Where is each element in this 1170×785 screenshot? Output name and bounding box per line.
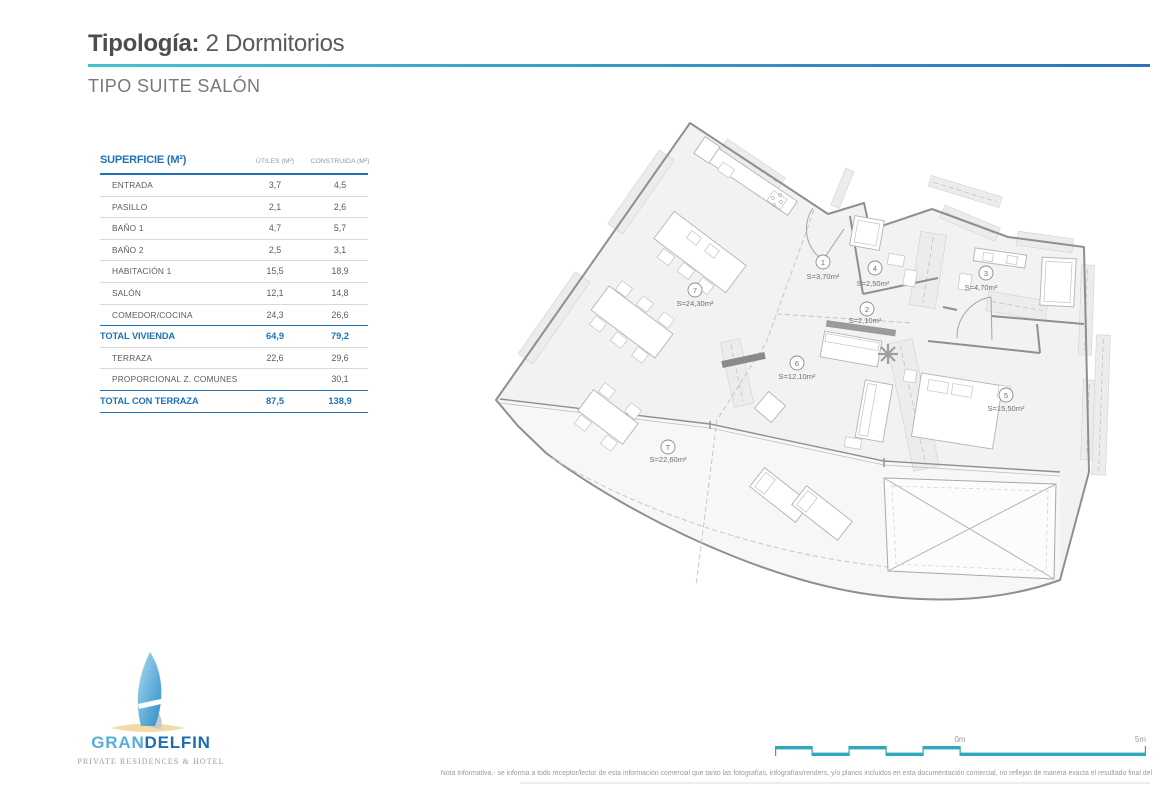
scale-five-label: 5m — [1135, 735, 1146, 744]
cutoff-line-artifact — [520, 782, 1150, 784]
table-row: SALÓN12,114,8 — [100, 283, 368, 305]
svg-text:7: 7 — [693, 286, 697, 295]
svg-text:S=2,50m²: S=2,50m² — [857, 279, 890, 288]
logo-gran: GRAN — [91, 733, 144, 752]
page-title: Tipología: 2 Dormitorios — [88, 30, 344, 58]
svg-text:S=12,10m²: S=12,10m² — [779, 372, 816, 381]
table-row: COMEDOR/COCINA24,326,6 — [100, 305, 368, 327]
table-row: HABITACIÓN 115,518,9 — [100, 261, 368, 283]
scale-bar: 0m 5m — [768, 733, 1150, 759]
svg-text:2: 2 — [865, 305, 869, 314]
floor-plan: 1 S=3,70m² 2 S=2,10m² 3 S=4,70m² 4 S=2,5… — [460, 110, 1115, 615]
table-row: ENTRADA3,74,5 — [100, 175, 368, 197]
page-subtitle: TIPO SUITE SALÓN — [88, 76, 260, 97]
surface-table: SUPERFICIE (M²) ÚTILES (M²) CONSTRUIDA (… — [100, 150, 368, 413]
table-row: PASILLO2,12,6 — [100, 197, 368, 219]
logo-wordmark: GRANDELFIN — [68, 733, 234, 753]
logo-delfin: DELFIN — [145, 733, 211, 752]
table-row: PROPORCIONAL Z. COMUNES30,1 — [100, 369, 368, 391]
table-row: BAÑO 14,75,7 — [100, 218, 368, 240]
table-row-total-vivienda: TOTAL VIVIENDA64,979,2 — [100, 326, 368, 348]
title-rest: 2 Dormitorios — [199, 30, 344, 57]
table-title: SUPERFICIE (M²) — [100, 154, 186, 166]
plant-icon — [878, 344, 898, 364]
svg-text:6: 6 — [795, 359, 799, 368]
svg-text:1: 1 — [821, 258, 825, 267]
table-row: TERRAZA22,629,6 — [100, 348, 368, 370]
table-row: BAÑO 22,53,1 — [100, 240, 368, 262]
disclaimer-note: Nota Informativa.- se informa a todo rec… — [392, 770, 1152, 777]
sail-shape — [138, 652, 162, 726]
table-header: SUPERFICIE (M²) ÚTILES (M²) CONSTRUIDA (… — [100, 150, 368, 175]
svg-text:S=3,70m²: S=3,70m² — [807, 272, 840, 281]
hatched-area — [884, 478, 1056, 579]
svg-text:S=22,60m²: S=22,60m² — [650, 455, 687, 464]
svg-text:T: T — [666, 443, 671, 452]
logo-tagline: PRIVATE RESIDENCES & HOTEL — [68, 757, 234, 766]
svg-text:S=24,30m²: S=24,30m² — [677, 299, 714, 308]
svg-text:S=2,10m²: S=2,10m² — [849, 316, 882, 325]
column-utiles: ÚTILES (M²) — [245, 158, 305, 165]
svg-text:S=15,50m²: S=15,50m² — [988, 404, 1025, 413]
table-row-total-terraza: TOTAL CON TERRAZA87,5138,9 — [100, 391, 368, 413]
svg-text:S=4,70m²: S=4,70m² — [965, 283, 998, 292]
svg-text:4: 4 — [873, 264, 877, 273]
scale-zero-label: 0m — [954, 735, 965, 744]
scale-bar-segments — [775, 746, 1146, 756]
svg-text:3: 3 — [984, 269, 988, 278]
svg-text:5: 5 — [1004, 391, 1008, 400]
logo-icon — [95, 648, 210, 733]
title-bold: Tipología: — [88, 30, 199, 57]
header-rule — [88, 64, 1150, 67]
column-construida: CONSTRUIDA (M²) — [305, 158, 375, 165]
